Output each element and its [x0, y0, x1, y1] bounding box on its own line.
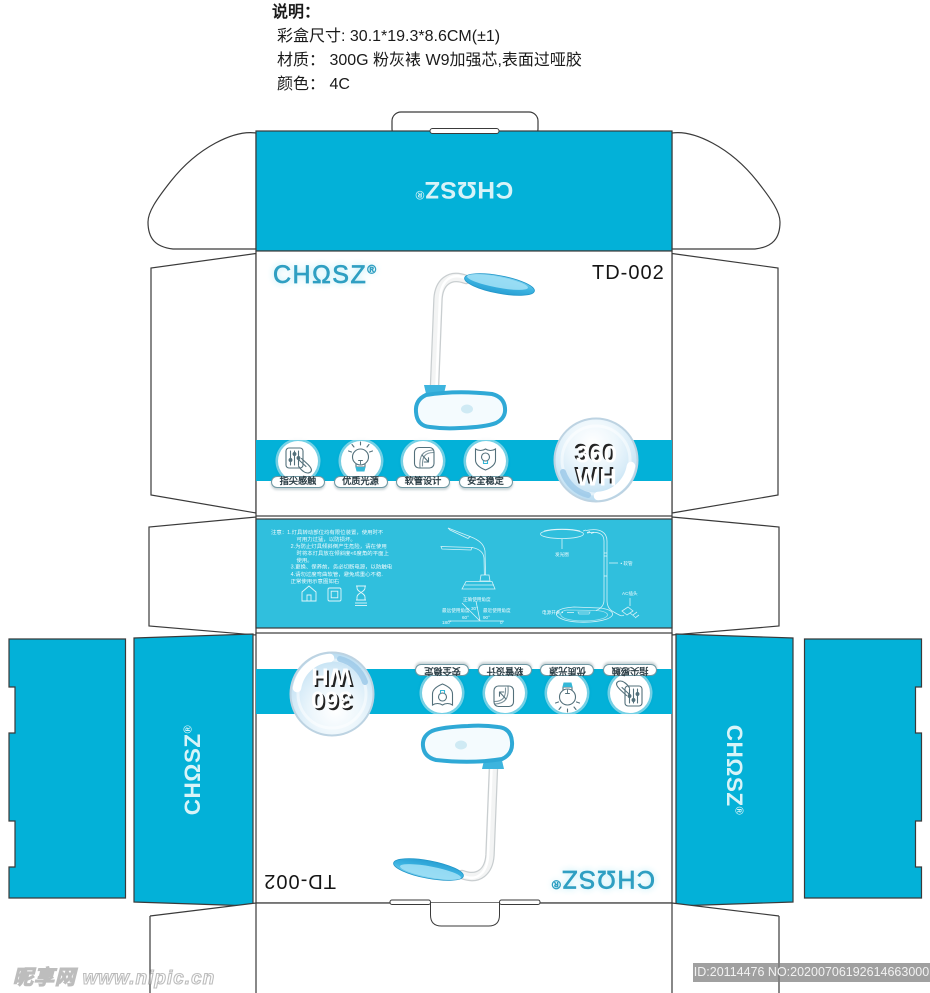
svg-text:发光圈: 发光圈: [555, 551, 569, 558]
svg-text:最近使用角度: 最近使用角度: [483, 607, 511, 614]
svg-text:电源开关 •: 电源开关 •: [542, 609, 564, 616]
svg-text:0°: 0°: [500, 620, 505, 625]
svg-text:WH: WH: [311, 663, 352, 690]
svg-text:最远使用角度: 最远使用角度: [442, 607, 470, 614]
svg-text:30°: 30°: [471, 606, 478, 611]
svg-text:正确使用角度: 正确使用角度: [463, 596, 491, 603]
svg-text:• 软管: • 软管: [621, 560, 633, 567]
svg-text:AC插头: AC插头: [622, 590, 638, 597]
svg-text:360: 360: [311, 686, 353, 713]
svg-text:90°: 90°: [483, 615, 490, 620]
svg-text:60°: 60°: [462, 615, 469, 620]
svg-text:WH: WH: [576, 464, 617, 491]
svg-text:180°: 180°: [442, 620, 452, 625]
